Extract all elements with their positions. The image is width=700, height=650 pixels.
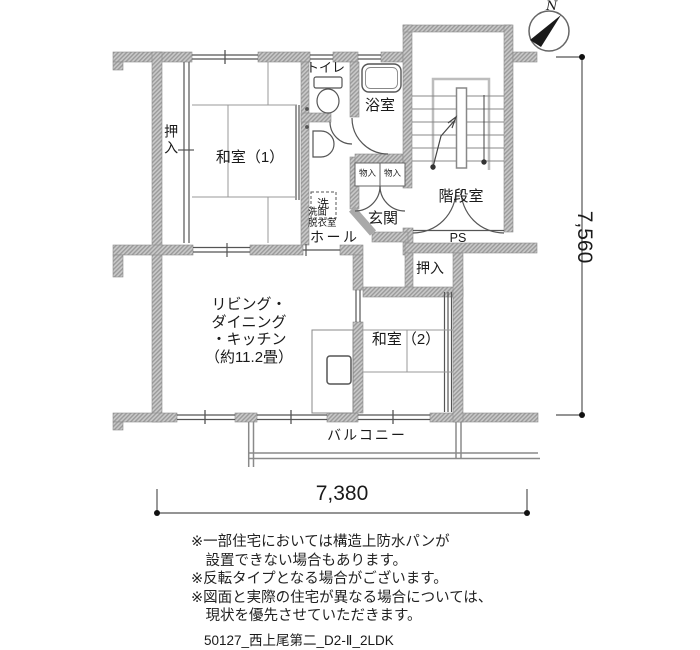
washroom-line2: 脱衣室 <box>308 218 337 229</box>
room-label-hall: ホール <box>310 229 360 245</box>
ldk-line1: リビング・ <box>187 296 311 314</box>
stairs <box>412 79 504 170</box>
ldk-line2: ダイニング <box>187 314 311 332</box>
room-label-washitsu2: 和室（2） <box>361 331 451 348</box>
note-line: 現状を優先させていただきます。 <box>191 607 492 626</box>
note-line: ※反転タイプとなる場合がございます。 <box>191 570 492 589</box>
room-label-storage1: 物入 <box>355 169 380 179</box>
room-label-toilet: トイレ <box>306 61 345 76</box>
north-label: N <box>546 0 557 15</box>
ldk-line4: （約11.2畳） <box>187 349 311 367</box>
room-label-washitsu1: 和室（1） <box>204 149 296 166</box>
floorplan-page: N トイレ 浴室 階段室 物入 物入 玄関 洗 洗面脱衣室 ホール PS 押入 … <box>0 0 700 650</box>
notes-block: ※一部住宅においては構造上防水パンが 設置できない場合もあります。 ※反転タイプ… <box>191 533 492 626</box>
washroom-line1: 洗面 <box>308 207 337 218</box>
room-label-ps: PS <box>440 231 476 245</box>
bathtub-icon <box>362 64 401 92</box>
note-line: ※一部住宅においては構造上防水パンが <box>191 533 492 552</box>
room-label-storage2: 物入 <box>380 169 405 179</box>
room-label-bath: 浴室 <box>356 97 404 114</box>
dimension-lines <box>154 54 585 516</box>
room-label-genkan: 玄関 <box>368 210 398 227</box>
dimension-width-label: 7,380 <box>292 482 392 506</box>
toilet-icon <box>314 77 342 113</box>
room-label-washroom: 洗面脱衣室 <box>308 207 337 229</box>
washbasin-icon <box>313 131 334 157</box>
dimension-height-label: 7,560 <box>572 190 596 284</box>
room-label-ldk: リビング・ダイニング・キッチン（約11.2畳） <box>187 296 311 366</box>
room-label-balcony: バルコニー <box>317 427 417 443</box>
north-compass-icon <box>529 11 569 51</box>
plan-id-footer: 50127_西上尾第二_D2-Ⅱ_2LDK <box>204 629 394 649</box>
room-label-staircase: 階段室 <box>424 188 498 205</box>
ldk-line3: ・キッチン <box>187 331 311 349</box>
room-label-oshiire1: 押入 <box>163 124 179 188</box>
note-line: ※図面と実際の住宅が異なる場合については、 <box>191 589 492 608</box>
note-line: 設置できない場合もあります。 <box>191 552 492 571</box>
room-label-oshiire2: 押入 <box>407 260 453 276</box>
